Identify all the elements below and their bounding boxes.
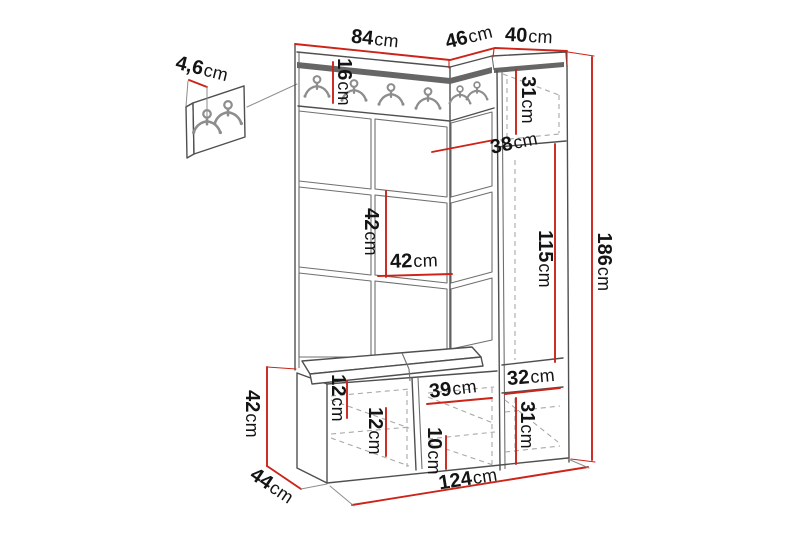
dim-top-width-left-label: 84cm bbox=[350, 27, 400, 52]
furniture-dimension-diagram: 4,6cm 84cm 46cm 40cm 16cm 31cm 38cm 115c… bbox=[0, 0, 800, 533]
wall-panel-detail bbox=[186, 80, 297, 158]
detail-leader-line bbox=[247, 84, 297, 107]
coat-hook-icon bbox=[415, 88, 442, 110]
dim-top-width-right-label: 40cm bbox=[505, 25, 554, 47]
dim-rail-height-label: 16cm bbox=[334, 58, 354, 106]
dim-cabinet-bottom-section-label: 31cm bbox=[517, 401, 537, 449]
dim-bench-top-section-label: 12cm bbox=[328, 374, 348, 422]
dim-cabinet-mid-section-label: 115cm bbox=[535, 230, 555, 288]
dim-panel-col-width-label: 42cm bbox=[390, 250, 439, 272]
dim-bench-shelf-a-label: 12cm bbox=[365, 407, 385, 455]
coat-hook-icon bbox=[378, 84, 405, 106]
dim-total-height-label: 186cm bbox=[594, 233, 614, 292]
coat-hook-icon bbox=[304, 76, 331, 98]
coat-hook-icon bbox=[466, 82, 489, 100]
dim-bench-shelf-b-label: 10cm bbox=[424, 427, 444, 475]
dim-bench-height-label: 42cm bbox=[242, 390, 262, 438]
dim-cabinet-inner-width-label: 32cm bbox=[506, 365, 555, 389]
dim-panel-row-height-label: 42cm bbox=[361, 208, 381, 256]
wall-panel-grid bbox=[299, 111, 492, 364]
dim-cabinet-top-section-label: 31cm bbox=[518, 76, 538, 124]
